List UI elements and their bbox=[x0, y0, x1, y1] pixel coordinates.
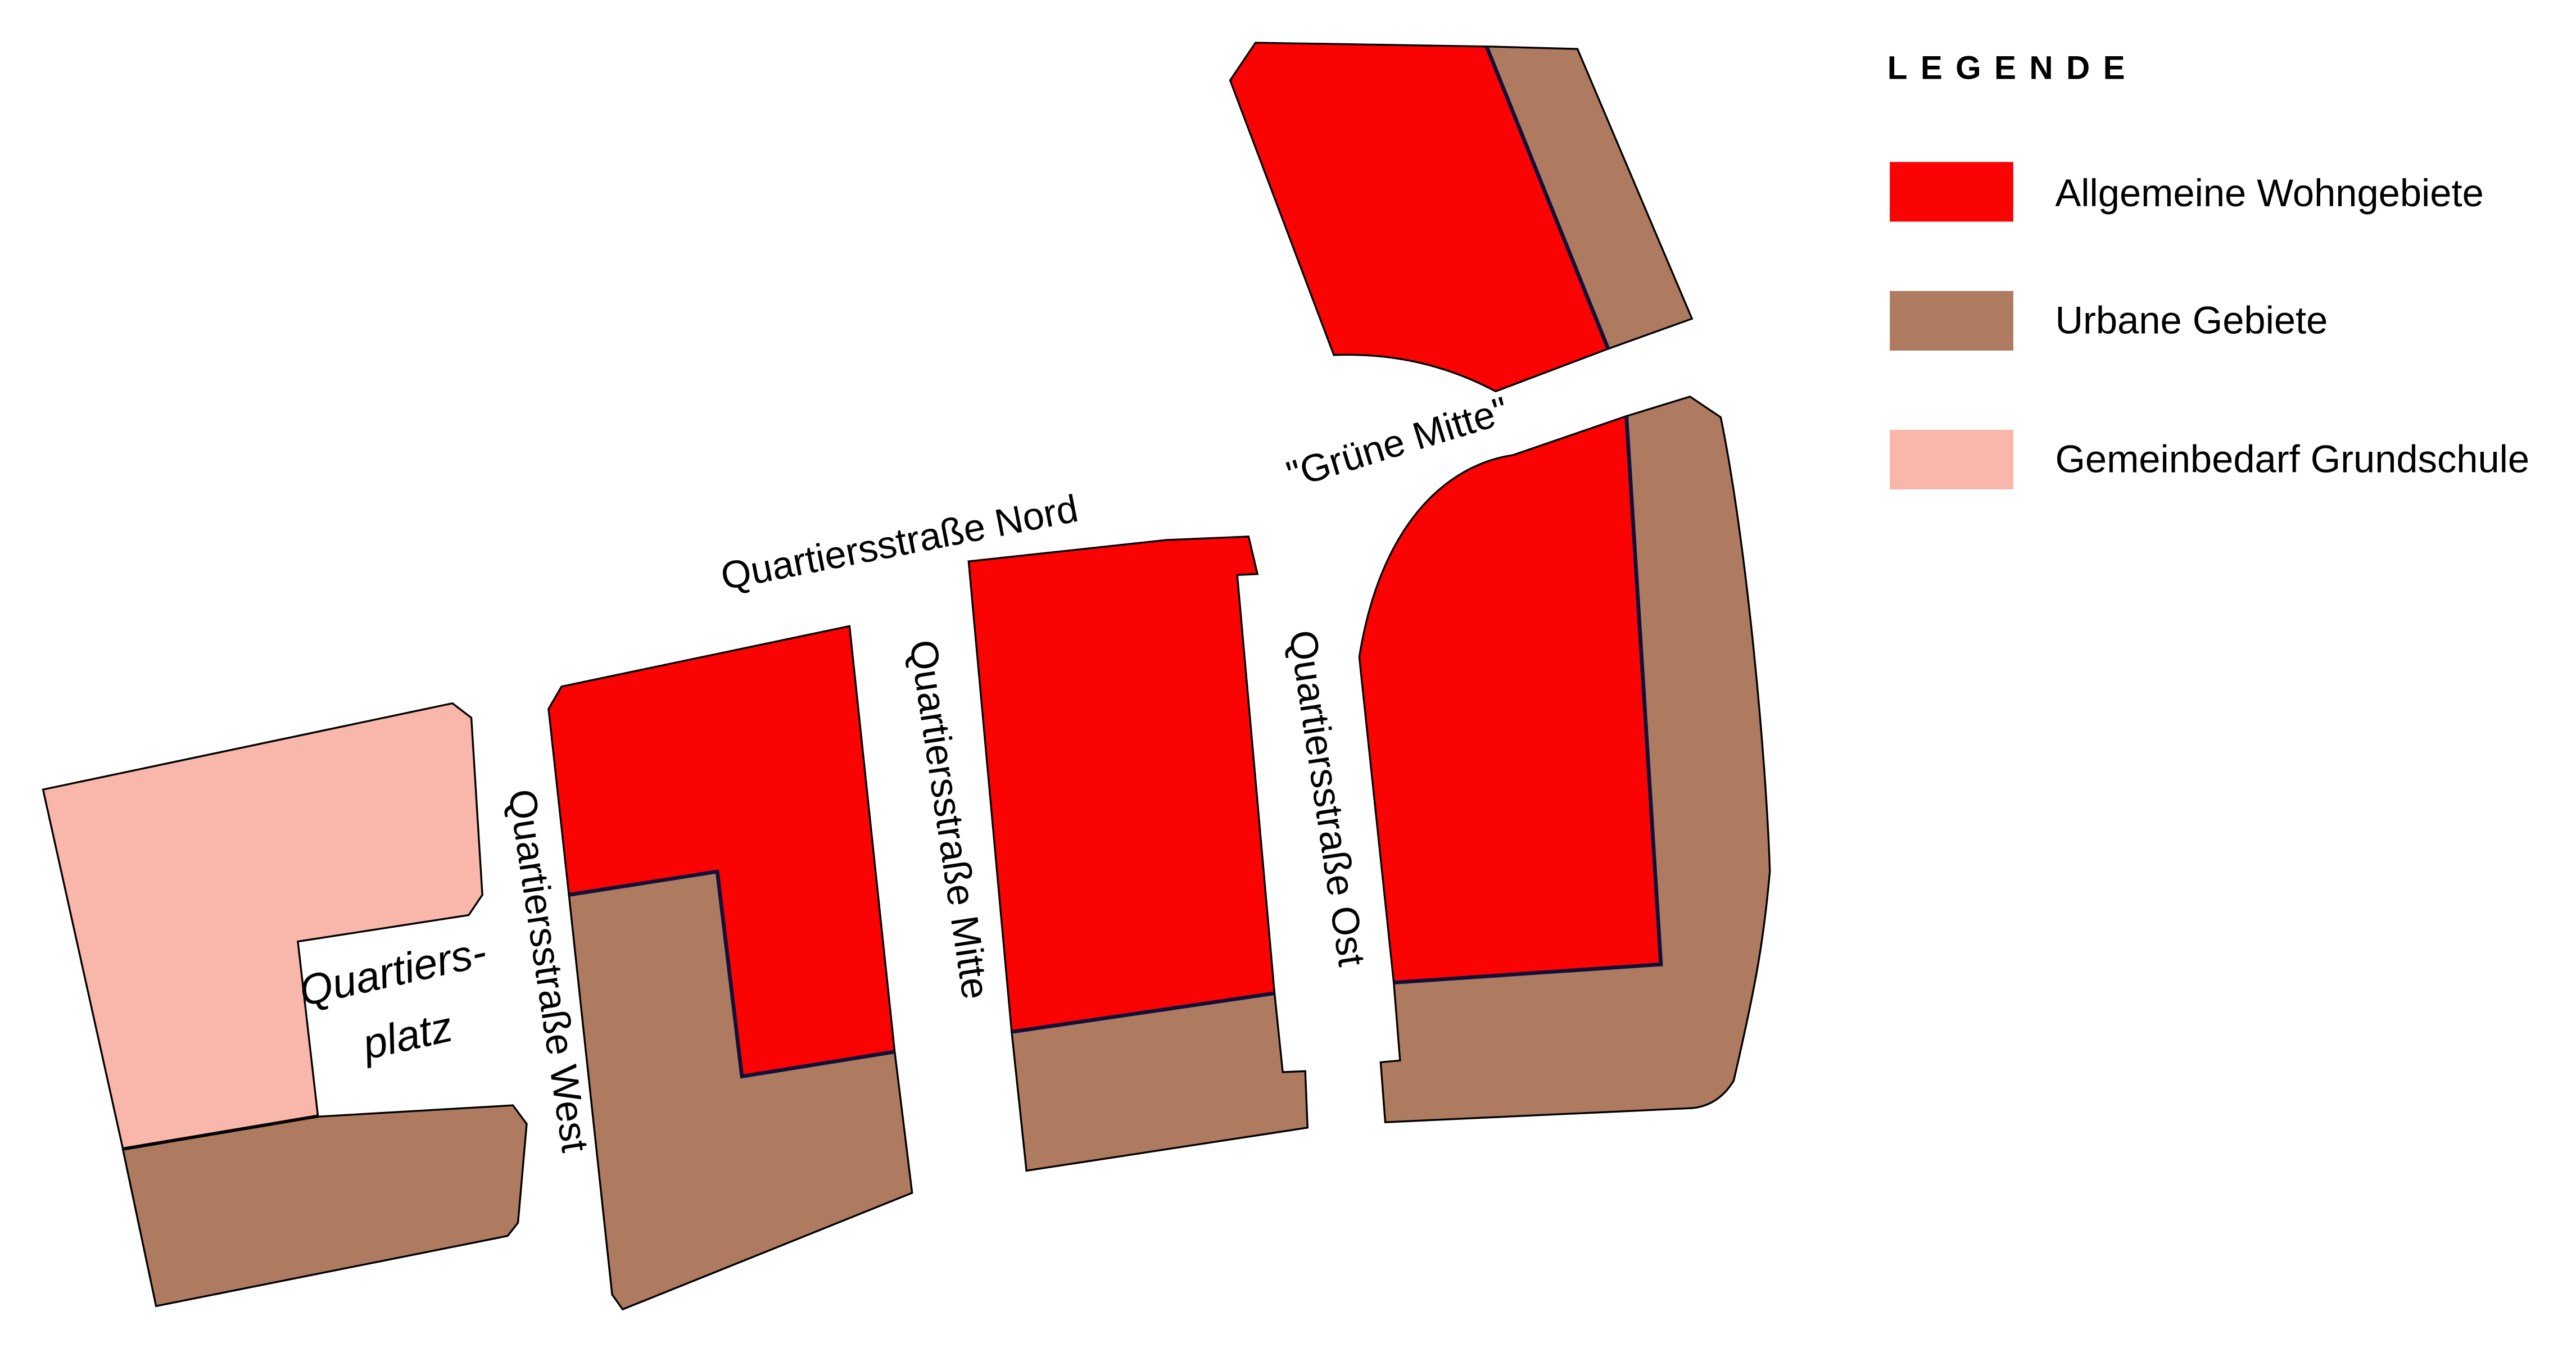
zone-residential-mitte bbox=[968, 537, 1274, 1032]
zoning-plan-canvas: Quartiersstraße Nord "Grüne Mitte" Quart… bbox=[0, 0, 2576, 1357]
legend-label-school: Gemeinbedarf Grundschule bbox=[2055, 438, 2529, 481]
legend-swatch-residential bbox=[1890, 162, 2013, 221]
legend-label-urban: Urbane Gebiete bbox=[2055, 299, 2328, 342]
plaza-label-line2: platz bbox=[357, 1002, 457, 1069]
street-labels-layer: Quartiersstraße Nord "Grüne Mitte" Quart… bbox=[295, 388, 1514, 1155]
street-label-ost: Quartiersstraße Ost bbox=[1281, 627, 1374, 969]
legend-label-residential: Allgemeine Wohngebiete bbox=[2055, 171, 2483, 215]
legend-title: LEGENDE bbox=[1887, 49, 2138, 86]
legend-swatch-school bbox=[1890, 430, 2013, 489]
legend-panel: LEGENDE Allgemeine Wohngebiete Urbane Ge… bbox=[1887, 49, 2529, 489]
zone-residential-ost bbox=[1359, 416, 1661, 983]
legend-swatch-urban bbox=[1890, 291, 2013, 351]
plaza-label-line1: Quartiers- bbox=[295, 928, 491, 1015]
zone-school-site bbox=[43, 704, 483, 1149]
